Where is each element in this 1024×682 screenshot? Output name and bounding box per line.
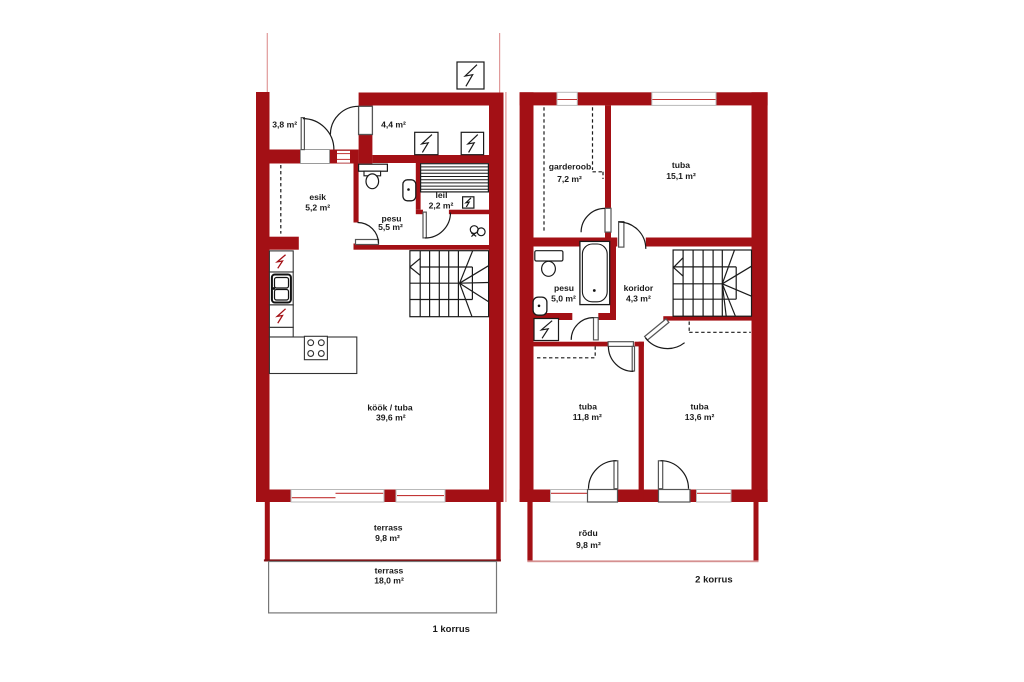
- svg-text:9,8 m²: 9,8 m²: [375, 533, 400, 543]
- svg-text:5,2 m²: 5,2 m²: [305, 203, 330, 213]
- svg-text:esik: esik: [309, 192, 326, 202]
- svg-text:tuba: tuba: [579, 401, 597, 411]
- svg-text:1 korrus: 1 korrus: [432, 624, 470, 635]
- svg-text:9,8 m²: 9,8 m²: [576, 540, 601, 550]
- svg-text:köök / tuba: köök / tuba: [367, 402, 413, 412]
- svg-text:7,2 m²: 7,2 m²: [557, 174, 582, 184]
- svg-text:3,8 m²: 3,8 m²: [272, 119, 297, 129]
- svg-text:4,4 m²: 4,4 m²: [381, 119, 406, 129]
- svg-text:11,8 m²: 11,8 m²: [573, 412, 602, 422]
- svg-text:5,5 m²: 5,5 m²: [378, 222, 403, 232]
- svg-text:terrass: terrass: [375, 566, 404, 576]
- svg-text:pesu: pesu: [554, 283, 574, 293]
- svg-text:5,0 m²: 5,0 m²: [551, 294, 576, 304]
- svg-text:2 korrus: 2 korrus: [695, 575, 733, 586]
- svg-text:39,6 m²: 39,6 m²: [376, 413, 406, 423]
- svg-text:13,6 m²: 13,6 m²: [685, 412, 715, 422]
- svg-text:18,0 m²: 18,0 m²: [374, 576, 404, 586]
- svg-text:15,1 m²: 15,1 m²: [666, 171, 696, 181]
- svg-text:garderoob: garderoob: [549, 162, 592, 172]
- svg-text:4,3 m²: 4,3 m²: [626, 294, 651, 304]
- svg-text:2,2 m²: 2,2 m²: [429, 201, 454, 211]
- svg-text:rõdu: rõdu: [579, 528, 598, 538]
- svg-text:tuba: tuba: [672, 160, 690, 170]
- svg-text:tuba: tuba: [691, 401, 709, 411]
- svg-text:koridor: koridor: [624, 283, 654, 293]
- svg-text:leil: leil: [436, 190, 448, 200]
- svg-text:terrass: terrass: [374, 523, 403, 533]
